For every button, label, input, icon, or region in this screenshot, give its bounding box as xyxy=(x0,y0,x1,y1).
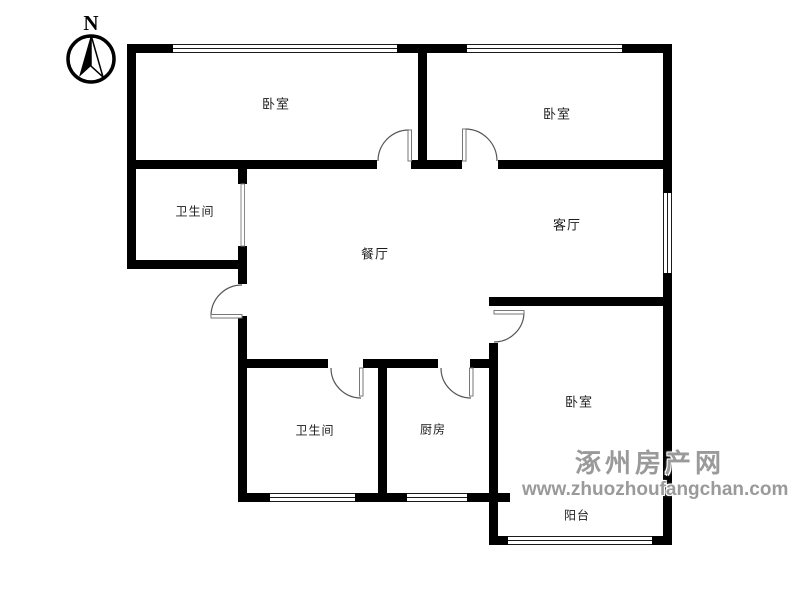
door-arc-bedroom-top-left xyxy=(378,130,409,161)
door-leaf-bathroom-lower xyxy=(360,368,364,396)
room-label-living: 客厅 xyxy=(553,215,581,234)
door-arc-bathroom-lower xyxy=(331,368,361,398)
floor-plan: N xyxy=(0,0,800,600)
door-leaf-bedroom-bottom xyxy=(494,311,524,315)
door-slide-bathroom-upper xyxy=(241,184,245,246)
room-label-bedroom-top-right: 卧室 xyxy=(543,104,571,123)
door-leaf-entry xyxy=(211,315,242,319)
room-label-bathroom-upper: 卫生间 xyxy=(175,203,214,220)
room-label-bedroom-bottom: 卧室 xyxy=(565,392,593,411)
door-leaf-bedroom-top-right xyxy=(463,129,467,161)
room-label-balcony: 阳台 xyxy=(564,507,590,524)
door-arc-entry xyxy=(211,285,242,316)
door-symbols xyxy=(0,0,800,600)
watermark-site-url: www.zhuozhoufangchan.com xyxy=(522,480,778,501)
room-label-dining: 餐厅 xyxy=(361,244,389,263)
room-label-bedroom-top-left: 卧室 xyxy=(262,94,290,113)
room-label-bathroom-lower: 卫生间 xyxy=(295,422,334,439)
door-leaf-kitchen xyxy=(470,368,474,396)
door-arc-bedroom-top-right xyxy=(465,129,497,161)
door-leaf-bedroom-top-left xyxy=(408,130,412,161)
door-arc-bedroom-bottom xyxy=(494,312,524,342)
watermark: 涿州房产网 www.zhuozhoufangchan.com xyxy=(522,449,778,500)
room-label-kitchen: 厨房 xyxy=(420,421,446,438)
watermark-site-name: 涿州房产网 xyxy=(522,449,778,478)
door-arc-kitchen xyxy=(441,368,471,398)
